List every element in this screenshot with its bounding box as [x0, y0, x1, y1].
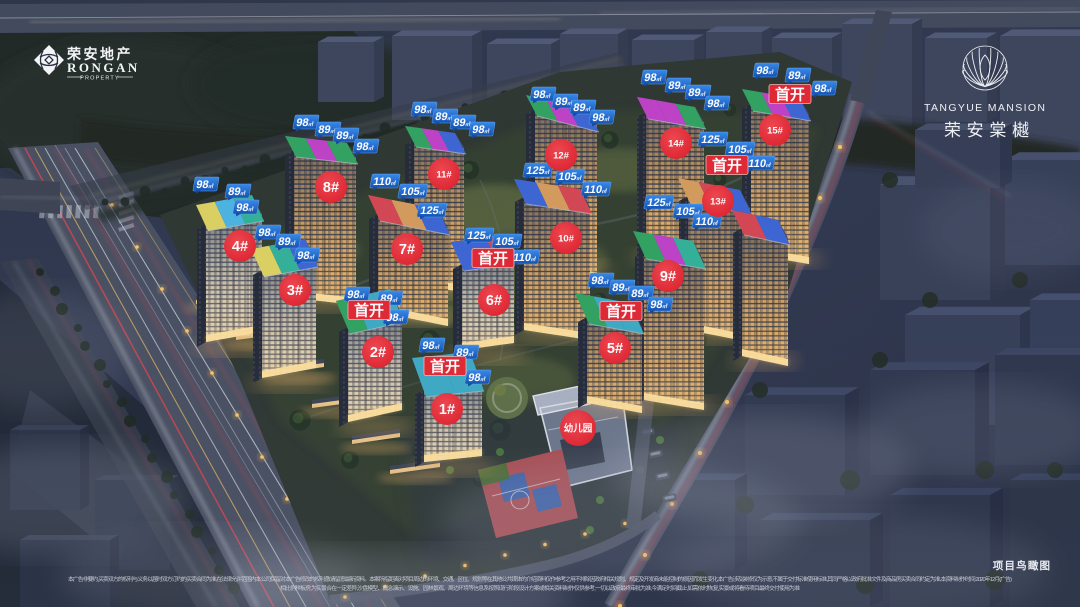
svg-text:相比例样板房,为实景合在一定差异,沙盘模型、概念演示、设施、: 相比例样板房,为实景合在一定差异,沙盘模型、概念演示、设施、园林景观、周边环境等… — [280, 584, 800, 592]
svg-text:PROPERTY: PROPERTY — [80, 76, 120, 82]
svg-text:TANGYUE MANSION: TANGYUE MANSION — [924, 102, 1047, 114]
svg-text:RONGAN: RONGAN — [67, 60, 140, 75]
svg-text:项目鸟瞰图: 项目鸟瞰图 — [993, 559, 1052, 572]
svg-text:本广告非要约,买卖双方的权利与义务以届时双方订约的买卖合同为: 本广告非要约,买卖双方的权利与义务以届时双方订约的买卖合同为准,在法律允许范围内… — [68, 575, 1012, 583]
